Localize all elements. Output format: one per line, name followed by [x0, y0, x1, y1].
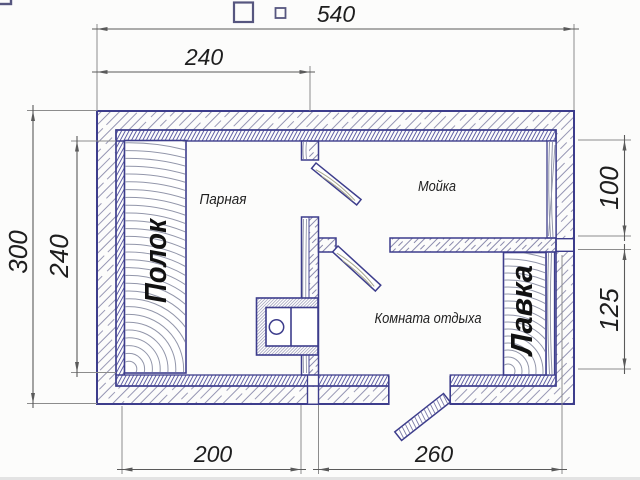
svg-text:540: 540: [317, 1, 356, 27]
svg-text:300: 300: [3, 230, 33, 274]
svg-text:Парная: Парная: [200, 191, 247, 208]
svg-text:240: 240: [44, 234, 74, 279]
svg-text:Лавка: Лавка: [504, 265, 539, 357]
svg-text:125: 125: [594, 288, 624, 332]
svg-text:200: 200: [193, 441, 233, 467]
svg-text:100: 100: [594, 166, 624, 210]
svg-text:Полок: Полок: [138, 218, 173, 303]
svg-text:Мойка: Мойка: [418, 178, 456, 195]
svg-text:260: 260: [414, 441, 454, 467]
svg-text:240: 240: [184, 44, 224, 70]
svg-text:Комната отдыха: Комната отдыха: [375, 310, 482, 327]
